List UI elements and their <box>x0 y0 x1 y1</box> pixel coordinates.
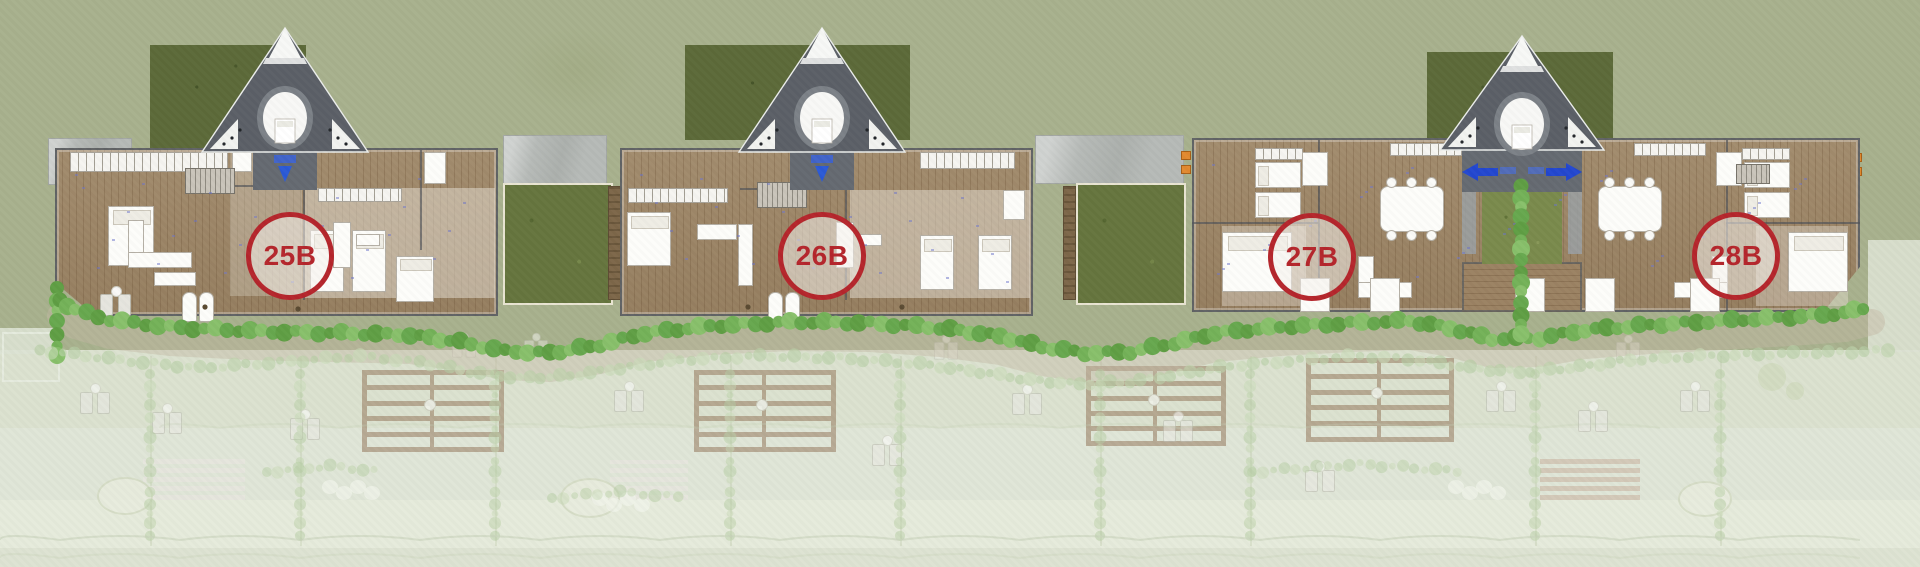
courtyard-grass <box>1482 192 1562 264</box>
lawn-band <box>0 548 1920 567</box>
annotation-fleck <box>1656 260 1659 262</box>
pergola <box>694 370 836 452</box>
sun-lounger <box>768 292 783 322</box>
wardrobe <box>1634 143 1706 156</box>
dining-chair <box>1406 177 1417 188</box>
table <box>1371 387 1383 399</box>
sun-lounger <box>199 292 214 322</box>
annotation-fleck <box>403 206 406 208</box>
annotation-fleck <box>209 192 212 194</box>
annotation-fleck <box>351 277 354 279</box>
staircase <box>757 182 807 208</box>
dining-chair <box>1386 177 1397 188</box>
daybed <box>1585 278 1615 312</box>
dining-chair <box>1604 177 1615 188</box>
annotation-fleck <box>1212 164 1215 166</box>
annotation-fleck <box>82 187 85 189</box>
annotation-fleck <box>75 174 78 176</box>
dining-chair <box>1644 230 1655 241</box>
wardrobe <box>920 152 1015 169</box>
dining-chair <box>1624 177 1635 188</box>
bed-pillow <box>1258 166 1269 186</box>
staircase <box>185 168 235 194</box>
annotation-fleck <box>1753 207 1756 209</box>
annotation-fleck <box>976 225 979 227</box>
annotation-fleck <box>388 234 391 236</box>
annotation-fleck <box>1651 265 1654 267</box>
plot-divider <box>1250 356 1252 546</box>
annotation-fleck <box>194 220 197 222</box>
plot-divider <box>300 356 302 546</box>
deck-platform <box>1540 458 1640 500</box>
dining-chair <box>1406 230 1417 241</box>
wardrobe <box>1255 148 1303 160</box>
annotation-fleck <box>1513 223 1516 225</box>
annotation-fleck <box>1508 228 1511 230</box>
lawn-band <box>0 350 1920 428</box>
plot-outline <box>2 332 60 382</box>
table <box>424 399 436 411</box>
annotation-fleck <box>1600 180 1603 182</box>
annotation-fleck <box>1661 255 1664 257</box>
plot-divider <box>150 356 152 546</box>
table <box>756 399 768 411</box>
garden-square <box>150 45 306 150</box>
unit-badge-27b[interactable]: 27B <box>1268 213 1356 301</box>
annotation-fleck <box>366 249 369 251</box>
garden-square <box>685 45 910 140</box>
shrub-cloud <box>634 498 650 512</box>
annotation-fleck <box>1799 183 1802 185</box>
bed-pillow <box>400 259 432 271</box>
furniture-bed <box>920 235 954 290</box>
interior-wall <box>420 150 422 250</box>
shrub-cloud <box>1490 486 1506 500</box>
annotation-fleck <box>1794 188 1797 190</box>
annotation-fleck <box>931 249 934 251</box>
furniture-block <box>697 224 737 240</box>
furniture-bed <box>627 212 671 266</box>
tree <box>1786 382 1804 400</box>
concrete-path <box>1035 135 1184 184</box>
wardrobe <box>1742 148 1790 160</box>
annotation-fleck <box>254 216 257 218</box>
annotation-fleck <box>172 235 175 237</box>
annotation-fleck <box>849 216 852 218</box>
annotation-fleck <box>239 244 242 246</box>
bed-pillow <box>1794 236 1845 251</box>
wardrobe <box>628 188 728 203</box>
annotation-fleck <box>1406 172 1409 174</box>
staircase <box>1736 164 1770 184</box>
daybed <box>1515 278 1545 312</box>
furniture-block <box>1003 190 1025 220</box>
furniture-block <box>424 152 446 184</box>
annotation-fleck <box>879 272 882 274</box>
shrub-cloud <box>364 486 380 500</box>
annotation-fleck <box>834 188 837 190</box>
annotation-fleck <box>1605 175 1608 177</box>
annotation-fleck <box>700 178 703 180</box>
courtyard-wall <box>1568 192 1582 254</box>
annotation-fleck <box>737 235 740 237</box>
annotation-fleck <box>1360 196 1363 198</box>
annotation-fleck <box>655 202 658 204</box>
annotation-fleck <box>1227 263 1230 265</box>
annotation-fleck <box>909 220 912 222</box>
unit-label: 25B <box>264 240 317 272</box>
furniture-bed <box>396 256 434 302</box>
annotation-fleck <box>1804 178 1807 180</box>
dining-table <box>1380 186 1444 232</box>
annotation-fleck <box>1467 247 1470 249</box>
annotation-fleck <box>1564 194 1567 196</box>
dining-chair <box>1386 230 1397 241</box>
unit-badge-25b[interactable]: 25B <box>246 212 334 300</box>
annotation-fleck <box>991 253 994 255</box>
wardrobe <box>318 188 402 202</box>
annotation-fleck <box>782 211 785 213</box>
furniture-bed <box>1255 192 1301 218</box>
furniture-block <box>154 272 196 286</box>
dining-chair <box>1426 230 1437 241</box>
hedge-strip <box>1063 186 1076 300</box>
annotation-fleck <box>1559 199 1562 201</box>
unit-badge-26b[interactable]: 26B <box>778 212 866 300</box>
annotation-fleck <box>894 192 897 194</box>
annotation-fleck <box>127 211 130 213</box>
furniture-block <box>128 252 192 268</box>
dining-chair <box>1624 230 1635 241</box>
annotation-fleck <box>1222 268 1225 270</box>
annotation-fleck <box>448 230 451 232</box>
annotation-fleck <box>1370 186 1373 188</box>
furniture-block <box>738 224 753 286</box>
plot-divider <box>1720 356 1722 546</box>
tree <box>1758 363 1786 391</box>
annotation-fleck <box>1758 202 1761 204</box>
table <box>1148 394 1160 406</box>
lawn-oval <box>1678 481 1732 517</box>
annotation-fleck <box>97 267 100 269</box>
annotation-fleck <box>336 197 339 199</box>
annotation-fleck <box>767 183 770 185</box>
furniture-block <box>1302 152 1328 186</box>
annotation-fleck <box>670 230 673 232</box>
unit-label: 27B <box>1286 241 1339 273</box>
annotation-fleck <box>752 263 755 265</box>
annotation-fleck <box>1411 167 1414 169</box>
lawn-court <box>503 183 613 305</box>
annotation-fleck <box>1554 204 1557 206</box>
garden-square <box>1427 52 1613 140</box>
annotation-fleck <box>1217 273 1220 275</box>
pergola <box>1306 358 1454 442</box>
unit-badge-28b[interactable]: 28B <box>1692 212 1780 300</box>
lawn-patch-right <box>1868 240 1920 352</box>
plot-divider <box>1535 356 1537 546</box>
bed-pillow <box>1258 196 1269 216</box>
sun-lounger <box>182 292 197 322</box>
annotation-fleck <box>1503 233 1506 235</box>
annotation-fleck <box>1365 191 1368 193</box>
annotation-fleck <box>224 272 227 274</box>
furniture-block <box>356 234 380 246</box>
annotation-fleck <box>142 183 145 185</box>
annotation-fleck <box>463 202 466 204</box>
annotation-fleck <box>1263 249 1266 251</box>
annotation-fleck <box>715 206 718 208</box>
site-plan-canvas: 25B 26B 27B 28B <box>0 0 1920 567</box>
deck-platform <box>143 458 245 500</box>
dining-chair <box>1604 230 1615 241</box>
annotation-fleck <box>961 197 964 199</box>
concrete-path <box>503 135 607 184</box>
daybed <box>1370 278 1400 312</box>
annotation-fleck <box>685 258 688 260</box>
annotation-fleck <box>1457 257 1460 259</box>
annotation-fleck <box>946 277 949 279</box>
dining-chair <box>1426 177 1437 188</box>
bed-pillow <box>631 216 668 229</box>
dining-chair <box>1644 177 1655 188</box>
wardrobe <box>1390 143 1462 156</box>
unit-label: 26B <box>796 240 849 272</box>
sun-lounger <box>785 292 800 322</box>
annotation-fleck <box>418 178 421 180</box>
pergola <box>362 370 504 452</box>
annotation-fleck <box>1006 281 1009 283</box>
annotation-fleck <box>1610 170 1613 172</box>
dining-table <box>1598 186 1662 232</box>
annotation-fleck <box>640 174 643 176</box>
interior-wall <box>230 185 303 187</box>
furniture-bed <box>1788 232 1848 292</box>
lawn-oval <box>97 477 153 515</box>
pergola <box>1086 366 1226 446</box>
path-marker <box>1181 151 1191 160</box>
annotation-fleck <box>157 263 160 265</box>
annotation-fleck <box>112 239 115 241</box>
bed-pillow <box>982 239 1011 253</box>
path-marker <box>1181 165 1191 174</box>
annotation-fleck <box>1416 276 1419 278</box>
lawn-court <box>1076 183 1186 305</box>
annotation-fleck <box>269 188 272 190</box>
bed-pillow <box>924 239 953 253</box>
furniture-block <box>333 222 351 268</box>
courtyard-wall <box>1462 192 1476 254</box>
annotation-fleck <box>433 258 436 260</box>
furniture-block <box>232 152 252 172</box>
annotation-fleck <box>1462 252 1465 254</box>
unit-label: 28B <box>1710 240 1763 272</box>
lawn-band <box>0 500 1920 548</box>
furniture-bed <box>1255 162 1301 188</box>
